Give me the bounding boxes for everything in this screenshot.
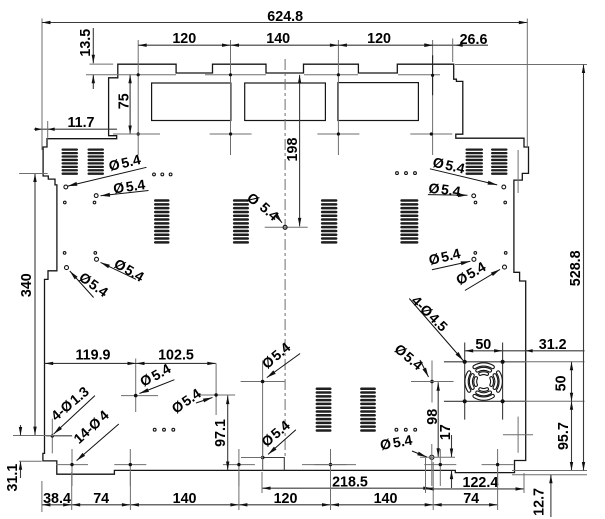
svg-text:50: 50	[475, 337, 491, 353]
svg-text:12.7: 12.7	[532, 488, 548, 516]
svg-text:98: 98	[425, 409, 441, 425]
svg-text:140: 140	[266, 31, 290, 47]
svg-text:218.5: 218.5	[332, 474, 368, 490]
svg-text:140: 140	[173, 491, 197, 507]
svg-text:31.1: 31.1	[5, 464, 21, 492]
svg-text:75: 75	[117, 93, 133, 109]
svg-text:624.8: 624.8	[267, 9, 303, 25]
svg-text:120: 120	[367, 31, 391, 47]
svg-text:50: 50	[554, 375, 570, 391]
svg-text:97.1: 97.1	[213, 419, 229, 447]
svg-text:13.5: 13.5	[78, 29, 94, 57]
svg-text:31.2: 31.2	[539, 337, 567, 353]
svg-text:95.7: 95.7	[556, 422, 572, 450]
svg-text:119.9: 119.9	[76, 348, 111, 364]
svg-text:5.4: 5.4	[392, 432, 414, 451]
svg-text:122.4: 122.4	[463, 475, 499, 491]
svg-text:340: 340	[19, 273, 35, 297]
svg-text:38.4: 38.4	[43, 491, 71, 507]
svg-text:26.6: 26.6	[460, 32, 488, 48]
svg-text:120: 120	[172, 31, 196, 47]
svg-text:74: 74	[463, 491, 479, 507]
svg-text:74: 74	[93, 491, 109, 507]
svg-text:120: 120	[274, 491, 298, 507]
svg-text:11.7: 11.7	[67, 115, 94, 131]
svg-text:528.8: 528.8	[568, 250, 584, 286]
svg-text:17: 17	[438, 424, 454, 440]
svg-text:140: 140	[374, 491, 398, 507]
svg-text:198: 198	[285, 138, 301, 162]
